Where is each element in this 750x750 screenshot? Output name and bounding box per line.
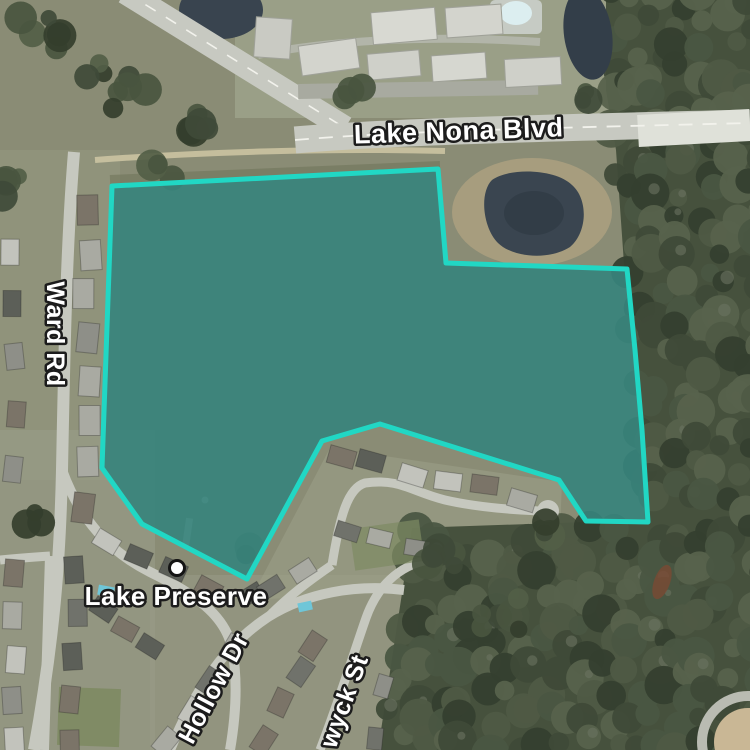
road-label-ward-rd: Ward Rd: [41, 281, 69, 386]
lake-preserve-marker[interactable]: [170, 561, 185, 576]
poi-label-lake-preserve[interactable]: Lake Preserve: [85, 581, 268, 611]
map-canvas[interactable]: Lake Nona Blvd Ward Rd Hollow Dr wyck St…: [0, 0, 750, 750]
